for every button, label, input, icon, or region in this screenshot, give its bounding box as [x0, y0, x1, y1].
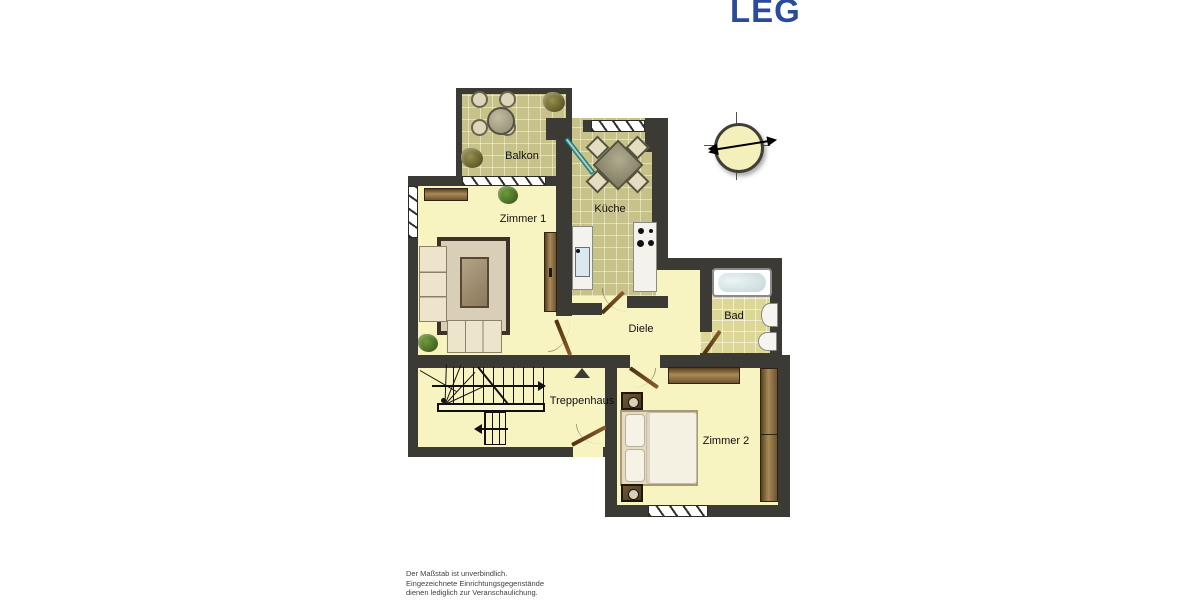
- lamp: [628, 489, 639, 500]
- duvet: [646, 412, 697, 484]
- kueche-window: [591, 120, 645, 132]
- stair-arrow-head: [538, 381, 546, 391]
- disclaimer-line: dienen lediglich zur Veranschaulichung.: [406, 588, 544, 598]
- balkon-chair: [471, 91, 488, 108]
- wall: [605, 355, 617, 517]
- zimmer1-window-top: [462, 176, 546, 186]
- room-label-treppenhaus: Treppenhaus: [550, 395, 614, 407]
- plant: [418, 334, 438, 352]
- faucet: [576, 249, 580, 253]
- nightstand: [621, 484, 643, 502]
- room-label-diele: Diele: [628, 323, 653, 335]
- wardrobe-right: [760, 368, 778, 502]
- entrance-direction-arrow: [574, 368, 590, 378]
- disclaimer-line: Der Maßstab ist unverbindlich.: [406, 569, 544, 579]
- coffee-table: [460, 257, 489, 308]
- zimmer2-window: [648, 505, 708, 517]
- kueche-counter-stove: [633, 222, 657, 292]
- plant: [461, 148, 483, 168]
- room-label-kueche: Küche: [594, 203, 625, 215]
- balkon-table: [487, 107, 515, 135]
- stair-arrow-down: [480, 428, 508, 430]
- disclaimer-line: Eingezeichnete Einrichtungsgegenstände: [406, 579, 544, 589]
- sofa-small: [447, 320, 502, 353]
- wall: [456, 88, 462, 180]
- stove-burner: [637, 240, 644, 247]
- bathtub-basin: [718, 273, 766, 292]
- stove-burner: [648, 240, 654, 246]
- north-arrow-head: [766, 135, 777, 146]
- room-label-zimmer1: Zimmer 1: [500, 213, 546, 225]
- pillow: [625, 449, 645, 482]
- stair-landing: [437, 403, 545, 412]
- bathtub: [712, 268, 772, 297]
- pillow: [625, 414, 645, 447]
- stove-burner: [649, 229, 653, 233]
- sofa: [419, 246, 447, 322]
- wall: [700, 270, 712, 332]
- stair-walkline: [432, 385, 540, 387]
- stair-arrow-down-head: [474, 424, 482, 434]
- balkon-chair: [499, 91, 516, 108]
- sideboard: [424, 188, 468, 201]
- disclaimer-text: Der Maßstab ist unverbindlich. Eingezeic…: [406, 569, 544, 598]
- leg-logo: LEG: [730, 0, 801, 30]
- wall: [603, 447, 617, 457]
- room-label-balkon: Balkon: [505, 150, 539, 162]
- wardrobe-top: [668, 367, 740, 384]
- wall: [627, 296, 668, 308]
- bathroom-sink: [761, 303, 778, 327]
- wall: [778, 355, 790, 517]
- nightstand: [621, 392, 643, 410]
- lamp: [628, 397, 639, 408]
- balkon-chair: [471, 119, 488, 136]
- floor-plan-page: LEG: [0, 0, 1200, 600]
- wall-unit-handle: [549, 268, 552, 277]
- room-label-bad: Bad: [724, 310, 744, 322]
- north-arrow-fletch-notch: [703, 146, 711, 155]
- toilet: [758, 332, 777, 351]
- wall: [408, 447, 573, 457]
- wardrobe-divider: [761, 434, 777, 435]
- plant: [543, 92, 565, 112]
- wall: [583, 120, 591, 132]
- room-label-zimmer2: Zimmer 2: [703, 435, 749, 447]
- stove-burner: [638, 228, 644, 234]
- zimmer1-window-left: [408, 186, 418, 238]
- plant: [498, 186, 518, 204]
- wall: [556, 303, 602, 315]
- wall: [556, 140, 572, 316]
